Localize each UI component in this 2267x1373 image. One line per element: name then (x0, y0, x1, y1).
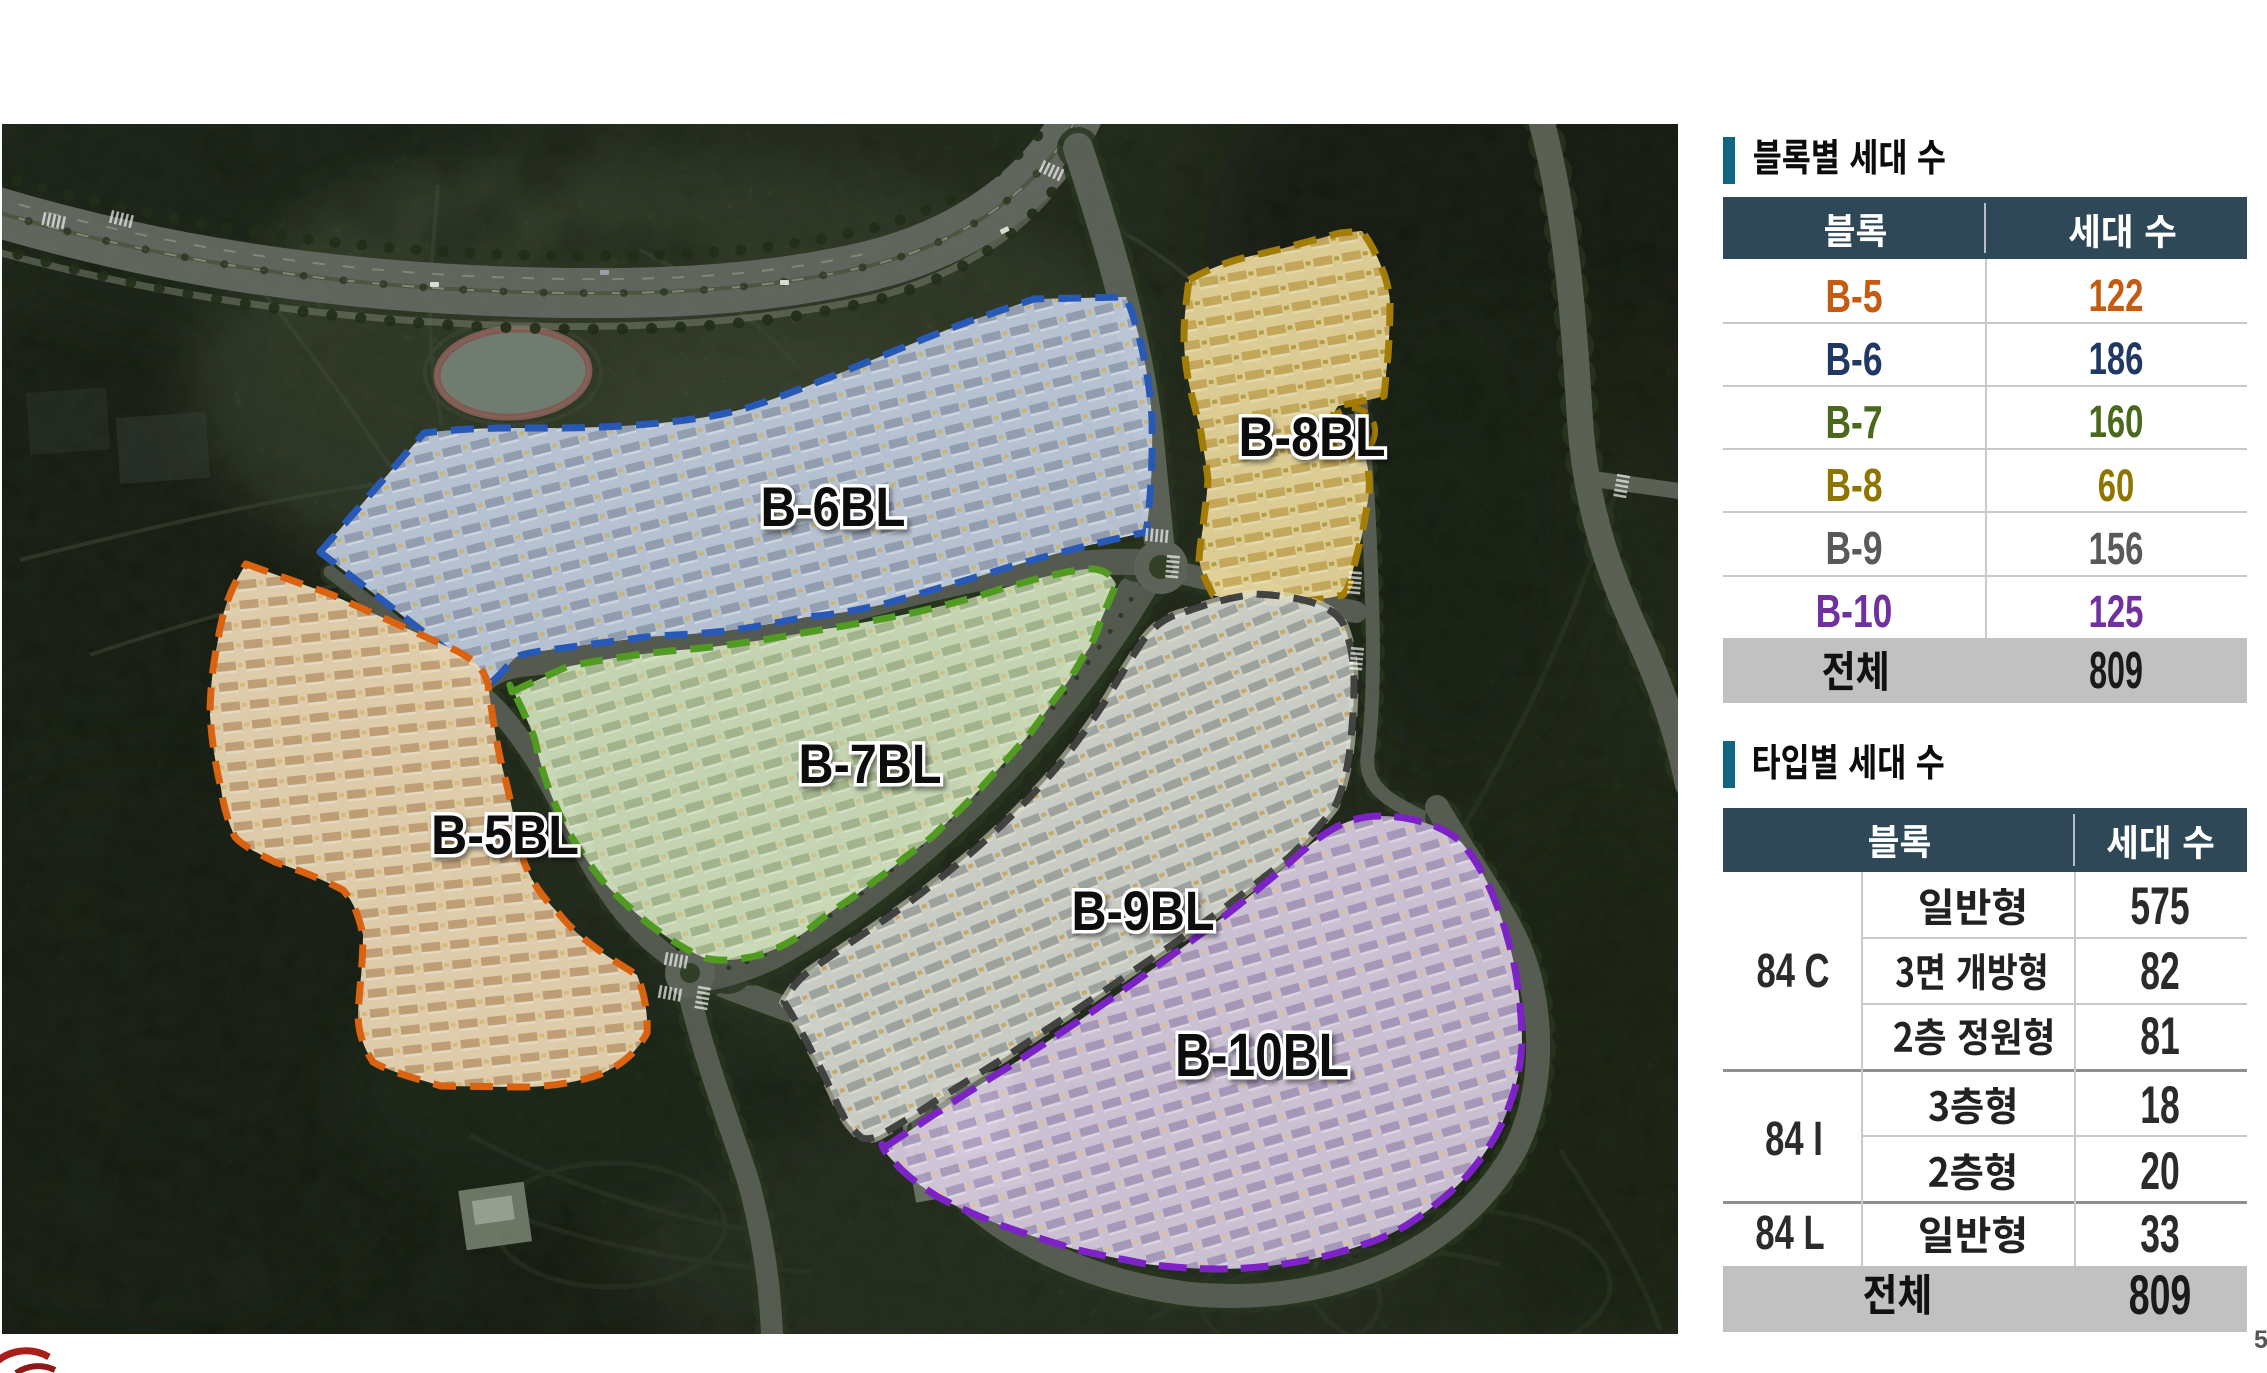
svg-text:B-8BL: B-8BL (1239, 405, 1386, 468)
svg-text:B-10BL: B-10BL (1175, 1021, 1349, 1089)
svg-text:B-7BL: B-7BL (799, 732, 942, 795)
svg-text:B-5BL: B-5BL (431, 803, 579, 866)
svg-text:B-6BL: B-6BL (761, 475, 906, 538)
svg-text:B-9BL: B-9BL (1072, 879, 1215, 942)
